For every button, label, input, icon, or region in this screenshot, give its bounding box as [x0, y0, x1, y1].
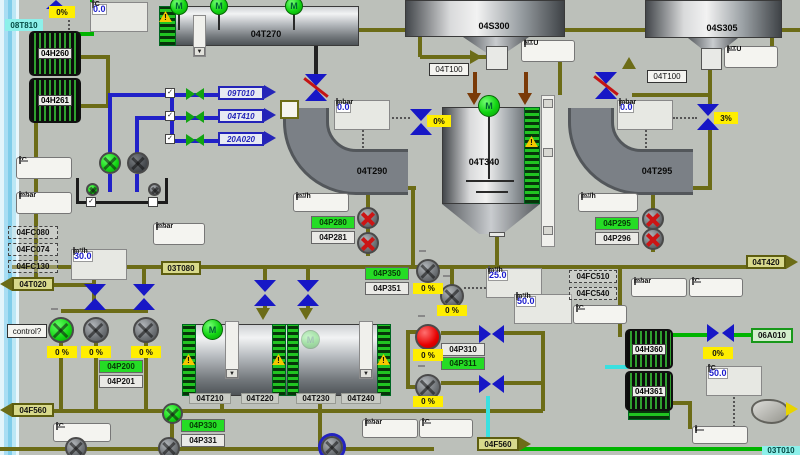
tank-label-04T210[interactable]: 04T210 — [189, 393, 231, 404]
flow-label-04T100-left[interactable]: 04T100 — [429, 63, 469, 76]
vessel-outlet — [701, 48, 722, 70]
tank-slider[interactable]: ▼ — [359, 321, 373, 379]
pressure-instrument[interactable]: mbar — [153, 223, 205, 245]
level-slider[interactable] — [541, 95, 555, 247]
unit-label: m³/h — [516, 293, 531, 300]
flow-arrow-right — [264, 131, 276, 145]
pump-label-04P330[interactable]: 04P330 — [181, 419, 225, 432]
flow-display-50[interactable]: 50.0m³/h — [514, 294, 572, 324]
pump-label-04P311[interactable]: 04P311 — [441, 357, 485, 370]
flow-label-08T810[interactable]: 08T810 — [5, 19, 43, 31]
fc-label-04FC074[interactable]: 04FC074 — [8, 243, 58, 256]
pressure-instrument[interactable]: mbar — [362, 419, 418, 438]
valve-x[interactable] — [297, 280, 319, 306]
pump-label-04P331[interactable]: 04P331 — [181, 434, 225, 447]
pump-off[interactable] — [158, 437, 180, 455]
valve-bow[interactable] — [479, 375, 504, 394]
flow-label-03T010[interactable]: 03T010 — [762, 446, 800, 455]
flow-arrow-down — [299, 308, 313, 320]
terminal-boxes — [365, 422, 367, 427]
vessel-outlet — [489, 232, 505, 237]
percent-badge[interactable]: 0 % — [413, 349, 443, 361]
fc-label-04FC130[interactable]: 04FC130 — [8, 260, 58, 273]
heat-exchanger-04H260[interactable]: 04H260 — [29, 31, 81, 76]
valve-x[interactable] — [133, 284, 155, 310]
out-of-service-cross — [303, 77, 328, 98]
pressure-instrument[interactable]: mbar — [631, 278, 687, 297]
flow-arrow-right — [470, 50, 482, 64]
pump-label-04P350[interactable]: 04P350 — [365, 267, 409, 280]
motor-icon[interactable]: M — [202, 319, 223, 340]
flow-label-03T080[interactable]: 03T080 — [161, 261, 201, 275]
heat-exchanger-04H260-label: 04H260 — [38, 48, 72, 59]
pump-off[interactable] — [133, 317, 159, 343]
percent-badge[interactable]: 0 % — [131, 346, 161, 358]
pipe-olive — [541, 333, 545, 411]
pipe-olive — [618, 267, 622, 337]
flow-arrow-left — [0, 277, 12, 291]
temp-instrument[interactable]: °C — [16, 157, 72, 179]
pump-on[interactable] — [86, 183, 99, 196]
flow-arrow-up — [622, 57, 636, 69]
terminal-boxes — [422, 422, 424, 427]
unit-label: °C — [92, 1, 100, 8]
flow-label-04T020[interactable]: 04T020 — [12, 277, 54, 291]
terminal-boxes — [416, 365, 440, 371]
temp-instrument[interactable]: °C — [419, 419, 473, 438]
flow-arrow-left — [0, 403, 12, 417]
flow-label-04T100-right[interactable]: 04T100 — [647, 70, 687, 83]
pump-on[interactable] — [99, 152, 121, 174]
unit-label: m³/h — [488, 267, 503, 274]
control-label[interactable]: control? — [7, 324, 47, 338]
green-valve[interactable] — [186, 88, 204, 101]
flow-label-04T420[interactable]: 04T420 — [746, 255, 786, 269]
percent-badge[interactable]: 0 % — [47, 346, 77, 358]
flow-arrow-down — [518, 93, 532, 105]
green-valve[interactable] — [186, 111, 204, 124]
agitator-shaft — [488, 117, 490, 179]
pump-off[interactable] — [416, 259, 440, 283]
pump-label-04P280[interactable]: 04P280 — [311, 216, 355, 229]
status-checkbox[interactable]: ✓ — [165, 88, 175, 98]
pipe-blue — [137, 116, 218, 120]
terminal-boxes — [417, 250, 439, 256]
flow-arrow-right — [519, 437, 531, 451]
terminal-boxes — [19, 195, 21, 200]
percent-badge[interactable]: 0% — [49, 6, 75, 18]
pipe-blue — [135, 116, 139, 154]
pump-label-04P200[interactable]: 04P200 — [99, 360, 143, 373]
flow-arrow-right — [786, 402, 798, 416]
flow-arrow-right — [264, 108, 276, 122]
pressure-display-04T290[interactable]: 0.0mbar — [334, 100, 390, 130]
terminal-boxes — [156, 226, 158, 231]
percent-badge[interactable]: 0 % — [81, 346, 111, 358]
terminal-boxes — [581, 196, 583, 201]
small-hopper — [280, 100, 299, 119]
tank-label-04T230[interactable]: 04T230 — [296, 393, 336, 404]
heat-exchanger-04H361-label: 04H361 — [632, 386, 666, 397]
flow-arrow-down — [256, 308, 270, 320]
valve-x[interactable] — [84, 284, 106, 310]
temp-instrument[interactable]: °C — [689, 278, 743, 297]
unit-label: mbar — [336, 99, 353, 106]
pipe-olive — [12, 409, 543, 413]
flow-arrow-right — [264, 85, 276, 99]
green-valve[interactable] — [186, 134, 204, 147]
pipe-olive — [441, 381, 481, 385]
fc-label-04FC080[interactable]: 04FC080 — [8, 226, 58, 239]
motor-icon[interactable]: M — [301, 330, 320, 349]
pump-off[interactable] — [83, 317, 109, 343]
weight-instrument[interactable]: t — [692, 426, 748, 444]
pipe-dark — [314, 44, 318, 77]
pipe-green — [487, 447, 800, 451]
flow-arrow-right — [786, 255, 798, 269]
level-mark — [476, 191, 508, 193]
slider-handle[interactable] — [543, 99, 553, 108]
pipe-olive — [441, 331, 481, 335]
fc-label-04FC540[interactable]: 04FC540 — [569, 287, 617, 300]
vessel-cone — [442, 204, 540, 234]
valve-x[interactable] — [305, 74, 327, 101]
terminal-boxes — [695, 429, 697, 434]
flow-display-30[interactable]: 30.0m³/h — [71, 249, 127, 280]
dotted-link — [733, 397, 735, 427]
silo-label-04S300[interactable]: 04S300 — [465, 19, 523, 32]
flow-label-04F560-left[interactable]: 04F560 — [12, 403, 54, 417]
pump-label-04P351[interactable]: 04P351 — [365, 282, 409, 295]
tank-label-04T290[interactable]: 04T290 — [343, 164, 401, 177]
temp-display-50[interactable]: 50.0°C — [706, 366, 762, 396]
flow-label-04T410[interactable]: 04T410 — [218, 109, 264, 123]
valve-x[interactable] — [595, 72, 617, 99]
terminal-boxes — [634, 281, 636, 286]
dotted-link — [464, 287, 486, 289]
valve-bow[interactable] — [479, 325, 504, 344]
status-checkbox[interactable]: ✓ — [165, 111, 175, 121]
silo-label-04S305[interactable]: 04S305 — [693, 21, 751, 34]
slider-down-arrow[interactable]: ▼ — [194, 47, 205, 56]
flow-arrow-down — [467, 93, 481, 105]
motor-icon[interactable]: M — [478, 95, 500, 117]
percent-badge[interactable]: 0% — [703, 347, 733, 359]
pump-crossed[interactable] — [642, 228, 664, 250]
unit-label: °C — [708, 365, 716, 372]
flow-instrument[interactable]: m³/h — [293, 193, 349, 212]
pipe-green — [733, 333, 753, 337]
turbidity-instrument[interactable]: NTU — [724, 46, 778, 68]
tank-label-04T340[interactable]: 04T340 — [455, 155, 513, 168]
valve-x[interactable] — [254, 280, 276, 306]
percent-badge[interactable]: 0 % — [437, 305, 467, 316]
tank-label-04T220[interactable]: 04T220 — [241, 393, 279, 404]
temp-instrument[interactable]: °C — [573, 305, 627, 324]
pipe-blue — [108, 93, 112, 154]
pump-off[interactable] — [148, 183, 161, 196]
tank-label-04T270[interactable]: 04T270 — [237, 27, 295, 40]
terminal-boxes — [576, 308, 578, 313]
slider-down-arrow[interactable]: ▼ — [360, 369, 372, 378]
flow-label-06A010[interactable]: 06A010 — [751, 328, 793, 343]
pump-blue[interactable] — [321, 436, 343, 455]
fc-label-04FC510[interactable]: 04FC510 — [569, 270, 617, 283]
pipe-olive — [495, 232, 499, 267]
level-column — [524, 107, 540, 204]
tank-label-04T240[interactable]: 04T240 — [341, 393, 381, 404]
terminal-boxes — [727, 49, 729, 54]
pump-crossed[interactable] — [642, 208, 664, 230]
pump-crossed[interactable] — [357, 207, 379, 229]
pump-label-04P281[interactable]: 04P281 — [311, 231, 355, 244]
turbidity-instrument[interactable]: NTU — [521, 40, 575, 62]
slider-handle[interactable] — [543, 148, 553, 157]
pump-label-04P295[interactable]: 04P295 — [595, 217, 639, 230]
pipe-olive — [708, 66, 712, 108]
heat-exchanger-04H261[interactable]: 04H261 — [29, 78, 81, 123]
pipe-olive — [688, 401, 692, 429]
pipe-olive — [406, 330, 410, 387]
pipe-olive — [708, 126, 712, 190]
heat-exchanger-04H360[interactable]: 04H360 — [625, 329, 673, 369]
pressure-display-04T295[interactable]: 0.0mbar — [617, 100, 673, 130]
valve-bow[interactable] — [707, 324, 734, 343]
heat-exchanger-04H360-label: 04H360 — [632, 344, 666, 355]
terminal-boxes — [692, 281, 694, 286]
percent-badge[interactable]: 0 % — [413, 396, 443, 407]
temp-display[interactable]: 0.0°C — [90, 2, 148, 32]
percent-badge[interactable]: 3% — [714, 112, 738, 124]
pump-alarm[interactable] — [415, 324, 441, 350]
terminal-boxes — [524, 43, 526, 48]
tank-label-04T295[interactable]: 04T295 — [628, 164, 686, 177]
level-mark — [466, 180, 514, 182]
pump-label-04P310[interactable]: 04P310 — [441, 343, 485, 356]
percent-badge[interactable]: 0% — [427, 115, 451, 127]
slider-down-arrow[interactable]: ▼ — [226, 369, 238, 378]
scada-process-screen: ▼▼▼04H26004H26104H36004H3610.0°C0.0mbar0… — [0, 0, 800, 455]
terminal-boxes — [19, 160, 21, 165]
pipe-olive — [504, 331, 545, 335]
heat-exchanger-04H361[interactable]: 04H361 — [625, 371, 673, 411]
pump-on[interactable] — [48, 317, 74, 343]
pipe-olive — [632, 93, 712, 97]
pump-crossed[interactable] — [357, 232, 379, 254]
pipe-green — [668, 333, 712, 337]
flow-label-04F560-bottom[interactable]: 04F560 — [477, 437, 519, 451]
pipe-olive — [558, 61, 562, 95]
status-checkbox[interactable]: ✓ — [165, 134, 175, 144]
vessel-outlet — [486, 46, 508, 70]
tank-slider[interactable]: ▼ — [225, 321, 239, 379]
out-of-service-cross — [593, 75, 618, 96]
terminal-boxes — [296, 196, 298, 201]
terminal-boxes — [49, 308, 73, 314]
flow-label-09T010[interactable]: 09T010 — [218, 86, 264, 100]
unit-label: m³/h — [73, 248, 88, 255]
flow-label-20A020[interactable]: 20A020 — [218, 132, 264, 146]
flow-instrument[interactable]: m³/h — [578, 193, 638, 212]
pressure-instrument[interactable]: mbar — [16, 192, 72, 214]
status-checkbox[interactable]: ✓ — [86, 197, 96, 207]
pump-label-04P201[interactable]: 04P201 — [99, 375, 143, 388]
tank-slider[interactable]: ▼ — [193, 15, 206, 57]
terminal-boxes — [441, 275, 463, 281]
pump-off[interactable] — [65, 437, 87, 455]
pipe-olive — [504, 381, 545, 385]
status-checkbox[interactable] — [148, 197, 158, 207]
unit-label: mbar — [619, 99, 636, 106]
pump-dark[interactable] — [127, 152, 149, 174]
clarifier-symbol — [751, 399, 789, 424]
pump-on[interactable] — [162, 403, 183, 424]
slider-handle[interactable] — [543, 226, 553, 235]
terminal-boxes — [56, 426, 58, 431]
pump-label-04P296[interactable]: 04P296 — [595, 232, 639, 245]
percent-badge[interactable]: 0 % — [413, 283, 443, 294]
level-column — [287, 324, 299, 396]
heat-exchanger-04H261-label: 04H261 — [38, 95, 72, 106]
